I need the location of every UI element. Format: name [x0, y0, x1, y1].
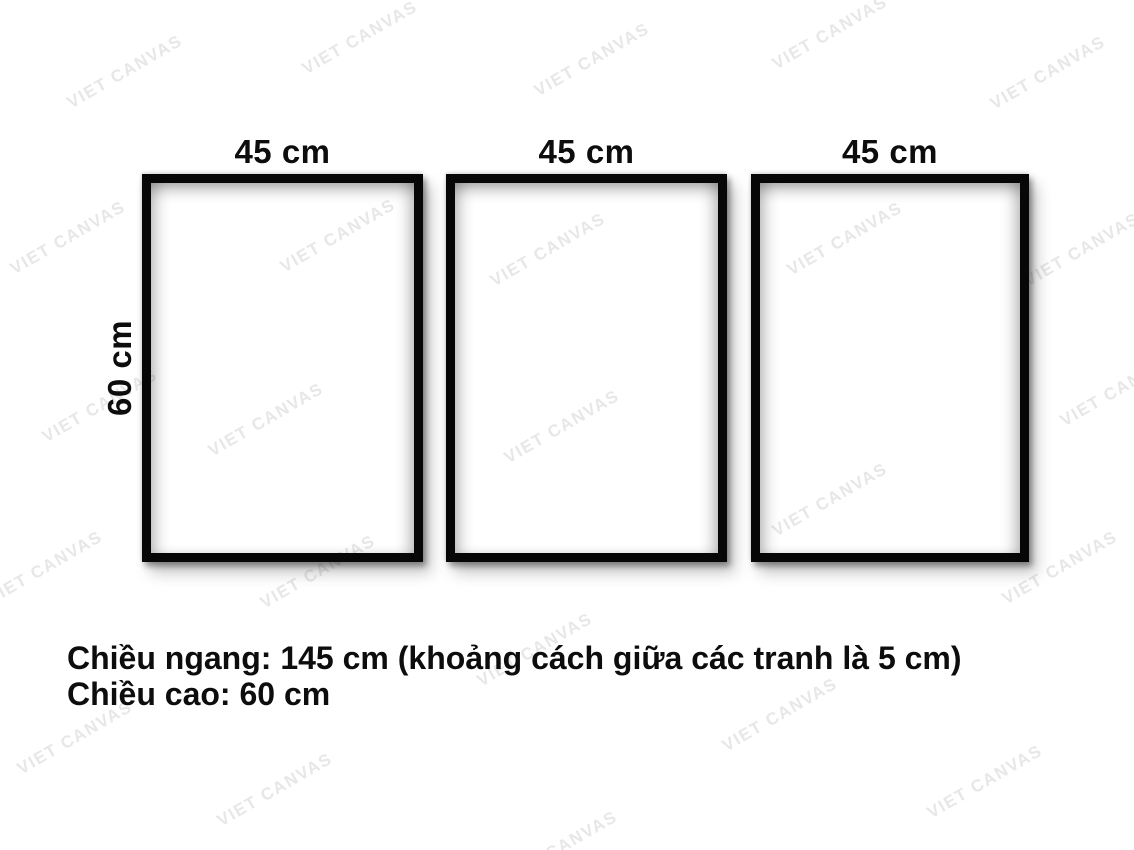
- viet-canvas-watermark: VIET CANVAS: [987, 32, 1109, 114]
- frame-3-canvas: [751, 174, 1029, 562]
- frame-3: 45 cm: [751, 130, 1029, 562]
- viet-canvas-watermark: VIET CANVAS: [924, 741, 1046, 823]
- frame-2-width-label: 45 cm: [446, 130, 727, 174]
- caption-line-vertical: Chiều cao: 60 cm: [67, 676, 962, 712]
- height-label: 60 cm: [101, 320, 139, 416]
- frame-2: 45 cm: [446, 130, 727, 562]
- viet-canvas-watermark: VIET CANVAS: [214, 749, 336, 831]
- frame-1-width-label: 45 cm: [142, 130, 423, 174]
- viet-canvas-watermark: VIET CANVAS: [531, 19, 653, 101]
- viet-canvas-watermark: VIET CANVAS: [64, 31, 186, 113]
- viet-canvas-watermark: VIET CANVAS: [499, 807, 621, 850]
- viet-canvas-watermark: VIET CANVAS: [1021, 209, 1134, 291]
- caption-line-horizontal: Chiều ngang: 145 cm (khoảng cách giữa cá…: [67, 640, 962, 676]
- viet-canvas-watermark: VIET CANVAS: [7, 197, 129, 279]
- frame-2-canvas: [446, 174, 727, 562]
- viet-canvas-watermark: VIET CANVAS: [299, 0, 421, 79]
- viet-canvas-watermark: VIET CANVAS: [0, 527, 106, 609]
- frame-1: 45 cm: [142, 130, 423, 562]
- product-dimension-diagram: VIET CANVASVIET CANVASVIET CANVASVIET CA…: [0, 0, 1134, 850]
- caption: Chiều ngang: 145 cm (khoảng cách giữa cá…: [67, 640, 962, 712]
- frame-1-canvas: [142, 174, 423, 562]
- frame-3-width-label: 45 cm: [751, 130, 1029, 174]
- viet-canvas-watermark: VIET CANVAS: [1057, 349, 1134, 431]
- viet-canvas-watermark: VIET CANVAS: [769, 0, 891, 74]
